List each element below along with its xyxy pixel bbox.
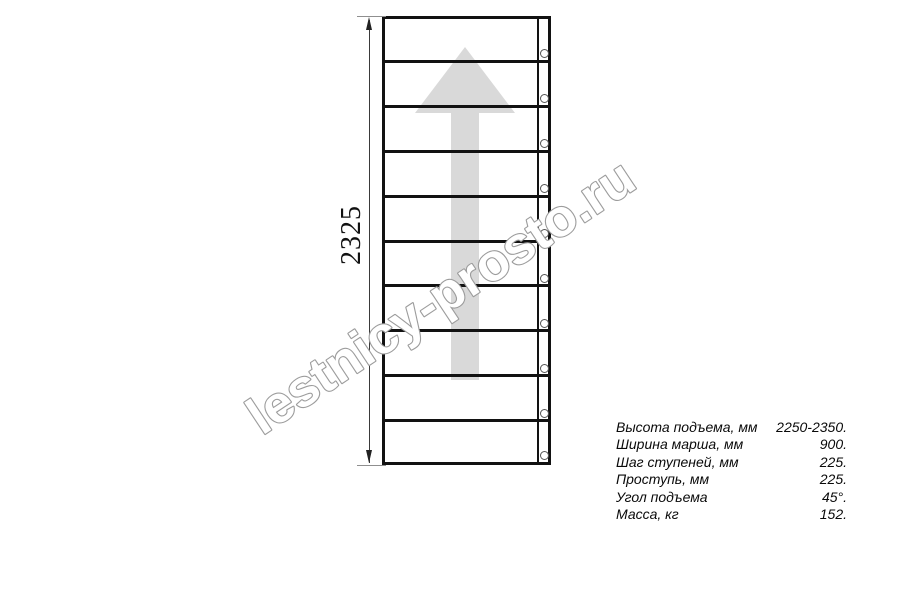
spec-row: Масса, кг 152. bbox=[616, 506, 847, 523]
stair-tread-line bbox=[382, 284, 551, 287]
spec-label: Проступь, мм bbox=[616, 471, 709, 488]
spec-label: Высота подъема, мм bbox=[616, 419, 758, 436]
stair-tread-line bbox=[382, 240, 551, 243]
extension-line-bottom bbox=[357, 465, 386, 466]
dimension-line bbox=[369, 20, 370, 463]
spec-label: Ширина марша, мм bbox=[616, 436, 743, 453]
spec-value: 152. bbox=[820, 506, 847, 523]
spec-value: 225. bbox=[820, 454, 847, 471]
stair-tread-line bbox=[382, 150, 551, 153]
baluster-circle bbox=[540, 184, 549, 193]
baluster-circle bbox=[540, 49, 549, 58]
spec-label: Угол подъема bbox=[616, 489, 708, 506]
specs-table: Высота подъема, мм 2250-2350. Ширина мар… bbox=[616, 419, 847, 523]
spec-value: 900. bbox=[820, 436, 847, 453]
dimension-arrow-up-icon bbox=[366, 17, 372, 30]
baluster-circle bbox=[540, 451, 549, 460]
stairs-drawing-page: 2325 lestnicy-prosto.ru Высота подъема, … bbox=[0, 0, 900, 600]
dimension-label: 2325 bbox=[339, 190, 365, 280]
stair-tread-line bbox=[382, 105, 551, 108]
spec-row: Ширина марша, мм 900. bbox=[616, 436, 847, 453]
stair-tread-line bbox=[382, 195, 551, 198]
spec-row: Высота подъема, мм 2250-2350. bbox=[616, 419, 847, 436]
spec-row: Проступь, мм 225. bbox=[616, 471, 847, 488]
baluster-circle bbox=[540, 364, 549, 373]
spec-value: 45°. bbox=[822, 489, 847, 506]
baluster-circle bbox=[540, 319, 549, 328]
spec-value: 2250-2350. bbox=[776, 419, 847, 436]
baluster-circle bbox=[540, 94, 549, 103]
stair-tread-line bbox=[382, 374, 551, 377]
baluster-circle bbox=[540, 409, 549, 418]
stair-tread-line bbox=[382, 329, 551, 332]
dimension-arrow-down-icon bbox=[366, 450, 372, 463]
spec-row: Угол подъема 45°. bbox=[616, 489, 847, 506]
stair-tread-line bbox=[382, 60, 551, 63]
spec-row: Шаг ступеней, мм 225. bbox=[616, 454, 847, 471]
spec-label: Масса, кг bbox=[616, 506, 679, 523]
baluster-circle bbox=[540, 229, 549, 238]
baluster-circle bbox=[540, 274, 549, 283]
spec-value: 225. bbox=[820, 471, 847, 488]
spec-label: Шаг ступеней, мм bbox=[616, 454, 739, 471]
stair-tread-line bbox=[382, 419, 551, 422]
baluster-circle bbox=[540, 139, 549, 148]
